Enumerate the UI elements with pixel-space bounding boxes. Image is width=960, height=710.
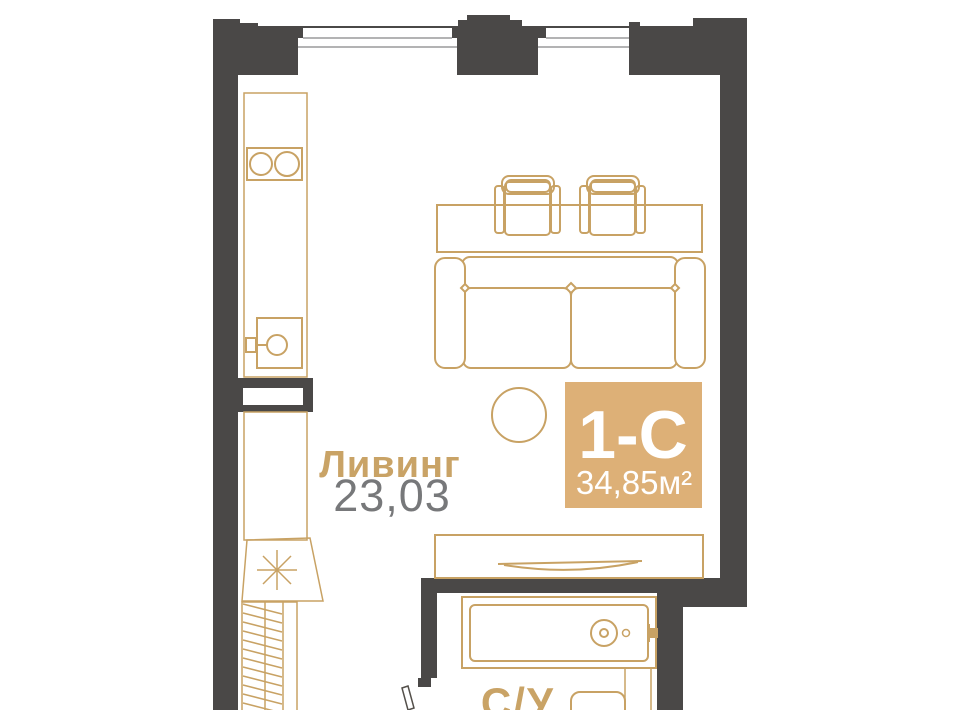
- sink-icon: [246, 318, 302, 368]
- bath-faucet-icon: [650, 628, 658, 638]
- bathroom-right-wall: [657, 593, 683, 710]
- badge-type-label: 1-С: [578, 397, 688, 473]
- left-wall: [213, 26, 238, 710]
- tv-zone: [435, 535, 703, 578]
- bathroom-left-wall-foot: [418, 678, 431, 687]
- badge-area-label: 34,85м²: [576, 464, 692, 501]
- apartment-type-badge: 1-С 34,85м²: [565, 382, 702, 508]
- dining-set: [437, 176, 702, 252]
- kitchen: [244, 93, 307, 540]
- stove-icon: [247, 148, 302, 180]
- storage-zone: [242, 538, 323, 710]
- window-icon-2: [538, 28, 629, 75]
- toilet-icon: [571, 692, 625, 710]
- room-area-label: 23,03: [333, 470, 451, 521]
- tv-console-icon: [435, 535, 703, 578]
- bathroom-top-wall: [421, 578, 747, 593]
- wardrobe-hatch-icon: [242, 602, 297, 710]
- coffee-table-icon: [492, 388, 546, 442]
- floor-plan-drawing: 1-С 34,85м² Ливинг 23,03 С/У: [0, 0, 960, 710]
- right-wall: [720, 26, 747, 593]
- top-wall-step-mid: [629, 22, 640, 27]
- window-icon-1: [298, 28, 457, 75]
- asterisk-appliance-icon: [242, 538, 323, 601]
- dining-table-icon: [437, 205, 702, 252]
- sofa-icon: [435, 257, 705, 368]
- kitchen-counter-bottom: [244, 412, 307, 540]
- floor-plan: 1-С 34,85м² Ливинг 23,03 С/У: [0, 0, 960, 710]
- top-wall-pier-cap: [467, 15, 510, 21]
- shaft-niche: [243, 388, 303, 405]
- top-wall-step-left: [213, 19, 240, 27]
- tv-icon: [498, 561, 642, 570]
- top-wall-step-right: [693, 18, 747, 27]
- bathroom-label: С/У: [481, 679, 555, 710]
- top-wall-pier: [458, 20, 522, 27]
- right-wall-step: [683, 593, 747, 607]
- door-leaf-icon: [402, 686, 414, 710]
- bathroom-left-wall: [421, 593, 437, 678]
- top-wall-step-left2: [240, 23, 258, 27]
- bathtub-icon: [462, 597, 658, 668]
- top-wall: [213, 26, 747, 75]
